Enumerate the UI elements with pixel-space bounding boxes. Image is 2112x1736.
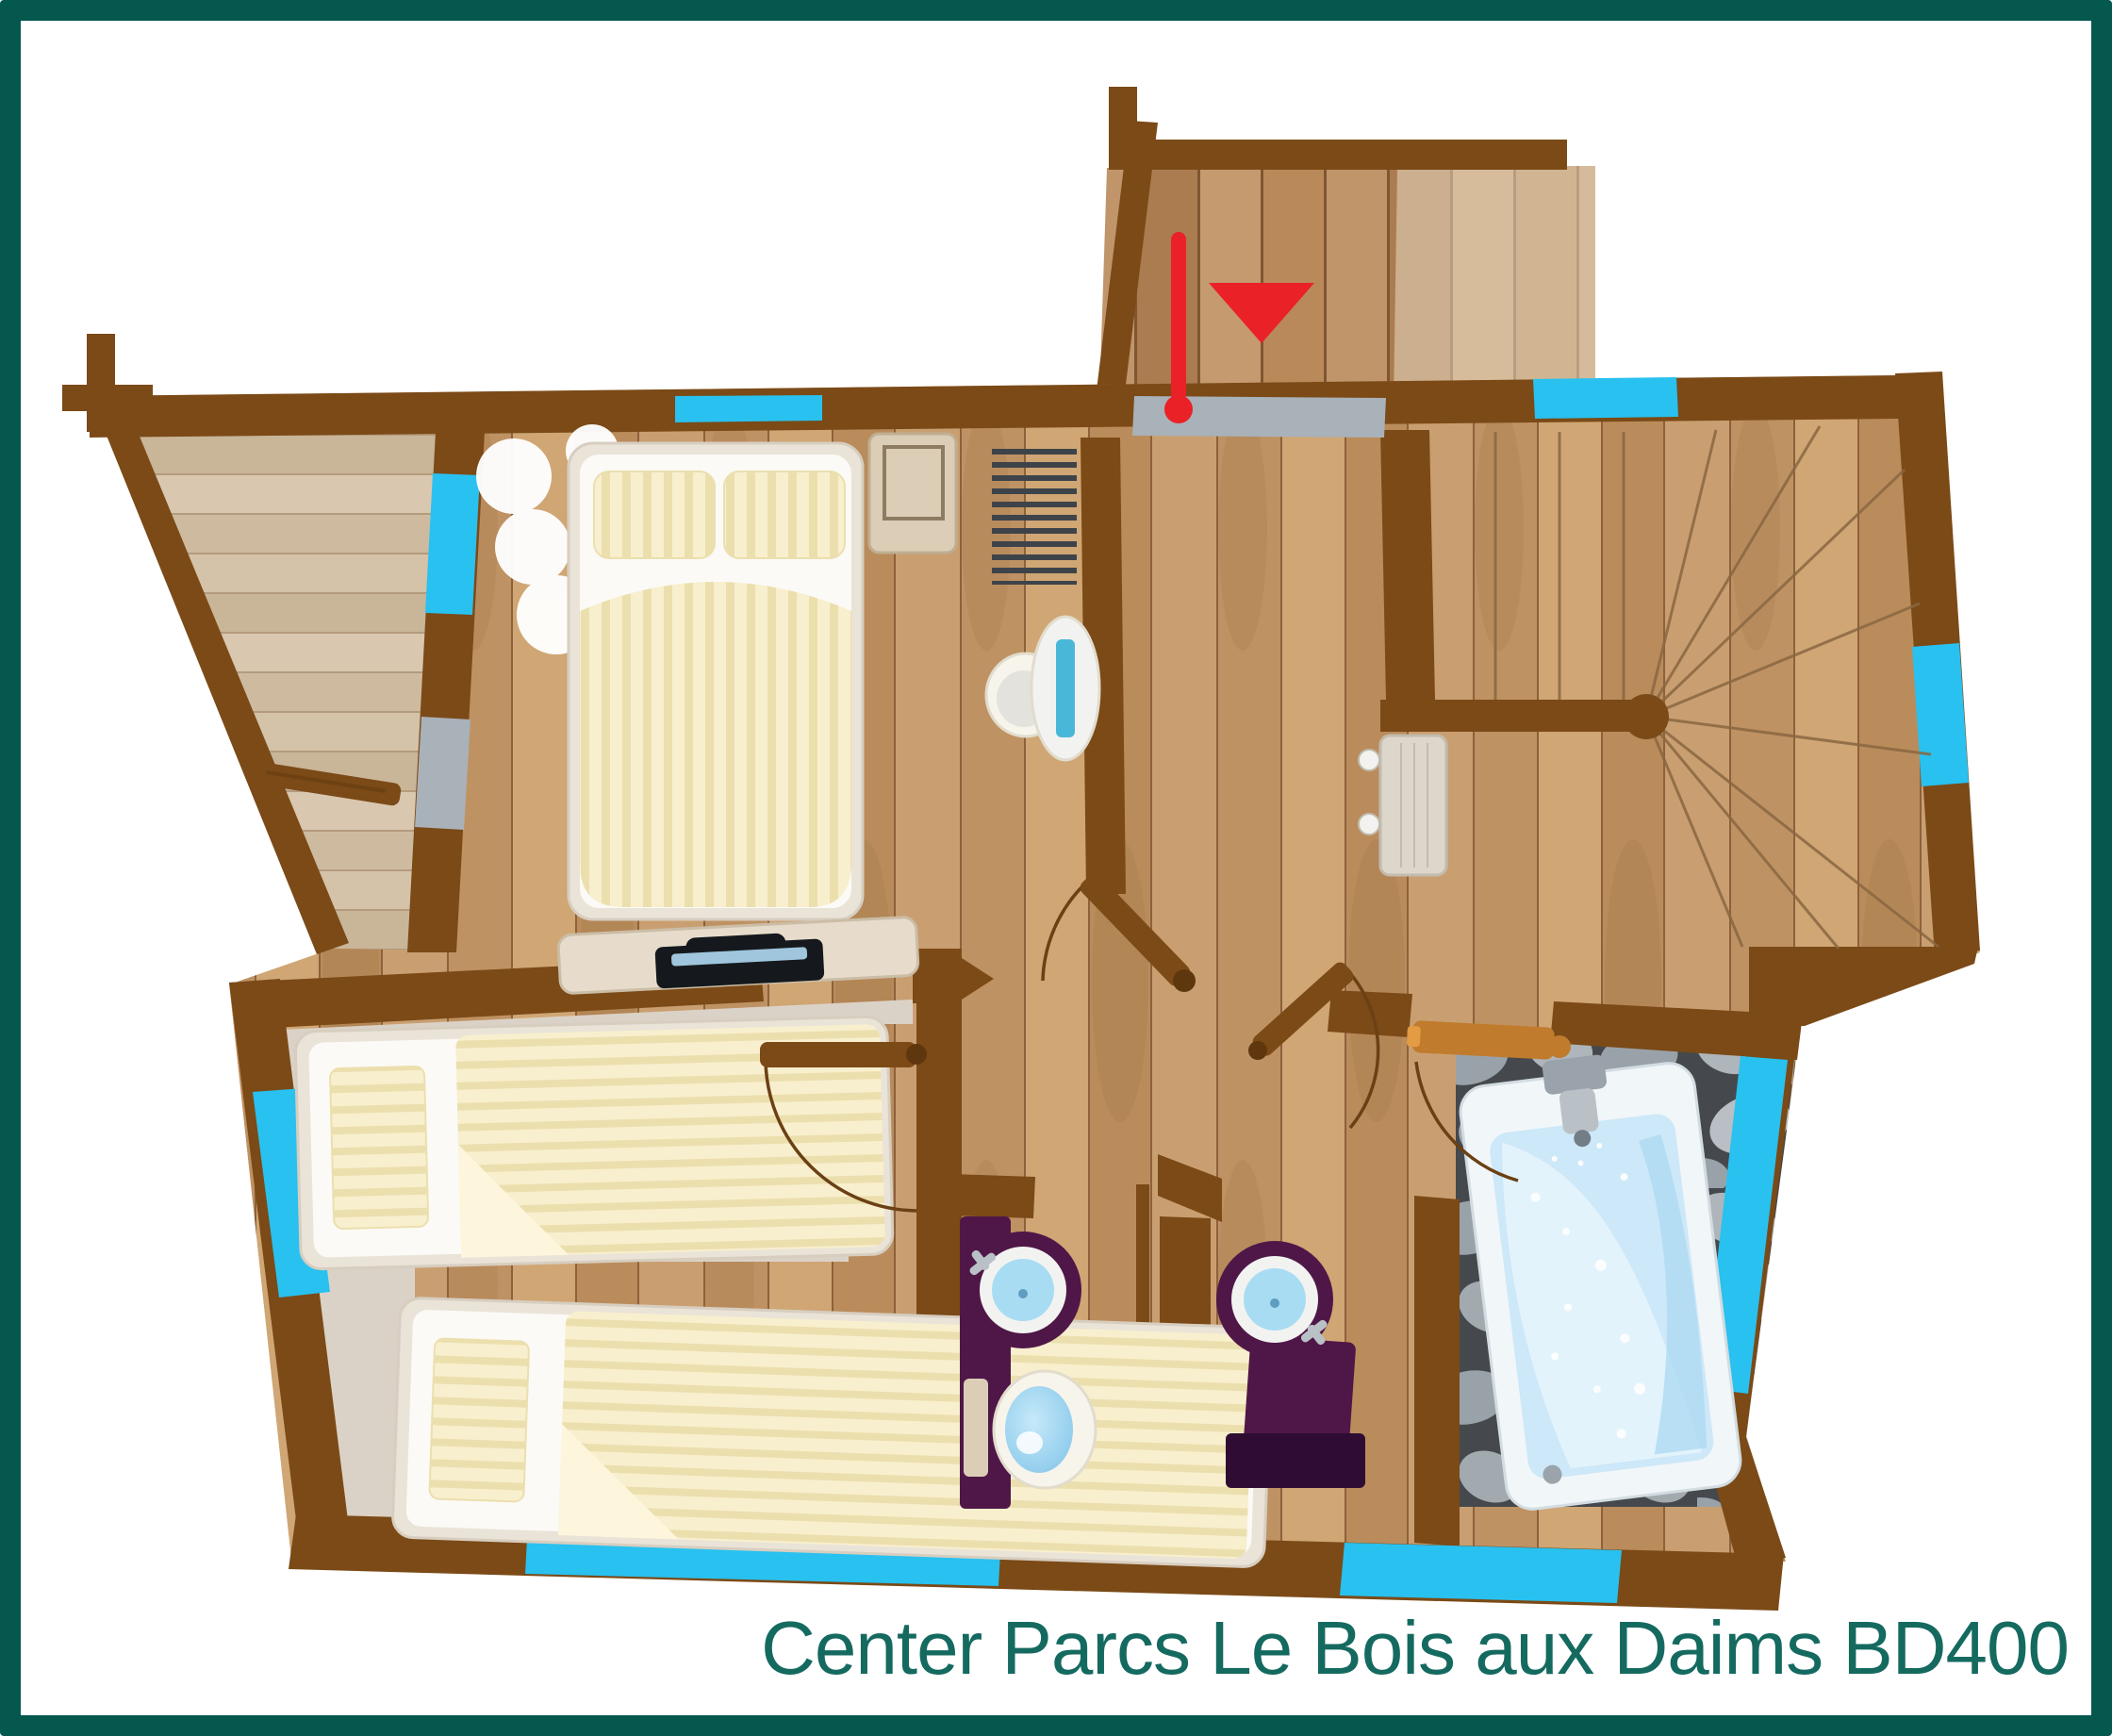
wc-cistern bbox=[964, 1379, 988, 1477]
plan-caption-text: Center Parcs Le Bois aux Daims BD400 bbox=[761, 1606, 2069, 1690]
towel bbox=[1056, 639, 1075, 737]
duvet bbox=[580, 582, 851, 907]
shower-mat bbox=[1226, 1433, 1365, 1488]
bath-top-wall-left bbox=[1328, 990, 1412, 1037]
twin-door-jamb bbox=[913, 949, 962, 1003]
double-bed bbox=[569, 443, 863, 919]
radiator bbox=[992, 443, 1077, 585]
door-pivot bbox=[1248, 1041, 1267, 1060]
entrance-door-line bbox=[1171, 232, 1186, 402]
stair-bottom-wall bbox=[1380, 700, 1644, 732]
floor-plan bbox=[0, 0, 2112, 1736]
terrace-threshold bbox=[415, 717, 470, 830]
bench-knob bbox=[1359, 814, 1379, 835]
master-side-window bbox=[425, 473, 480, 615]
pillow bbox=[429, 1338, 529, 1501]
pillow bbox=[594, 471, 715, 558]
stair-side-window bbox=[1912, 643, 1969, 786]
entrance-door-pivot bbox=[1164, 395, 1193, 423]
stair-top-window bbox=[1533, 377, 1678, 419]
plan-caption: Center Parcs Le Bois aux Daims BD400 bbox=[761, 1605, 2069, 1692]
pillow bbox=[330, 1066, 428, 1230]
wc-top-wall bbox=[920, 1173, 1035, 1218]
door-pivot bbox=[1548, 1035, 1571, 1058]
duvet bbox=[558, 1311, 1254, 1559]
stair-left-wall bbox=[1380, 430, 1435, 700]
bottom-window-right bbox=[1340, 1543, 1622, 1603]
porch-top-wall bbox=[1109, 140, 1567, 170]
entrance-porch bbox=[1096, 87, 1595, 400]
porch-deck-light bbox=[1394, 166, 1595, 400]
door-pivot bbox=[906, 1044, 927, 1065]
wc-toilet-water bbox=[1005, 1386, 1073, 1473]
shower-right-wall bbox=[1414, 1196, 1460, 1546]
door-pivot bbox=[1173, 969, 1196, 992]
stair-newel-post bbox=[1624, 694, 1669, 739]
floor-plan-page: Center Parcs Le Bois aux Daims BD400 bbox=[0, 0, 2112, 1736]
pillow bbox=[724, 471, 845, 558]
bench-knob bbox=[1359, 750, 1379, 770]
single-bed-2 bbox=[392, 1298, 1272, 1567]
master-window bbox=[675, 395, 822, 422]
